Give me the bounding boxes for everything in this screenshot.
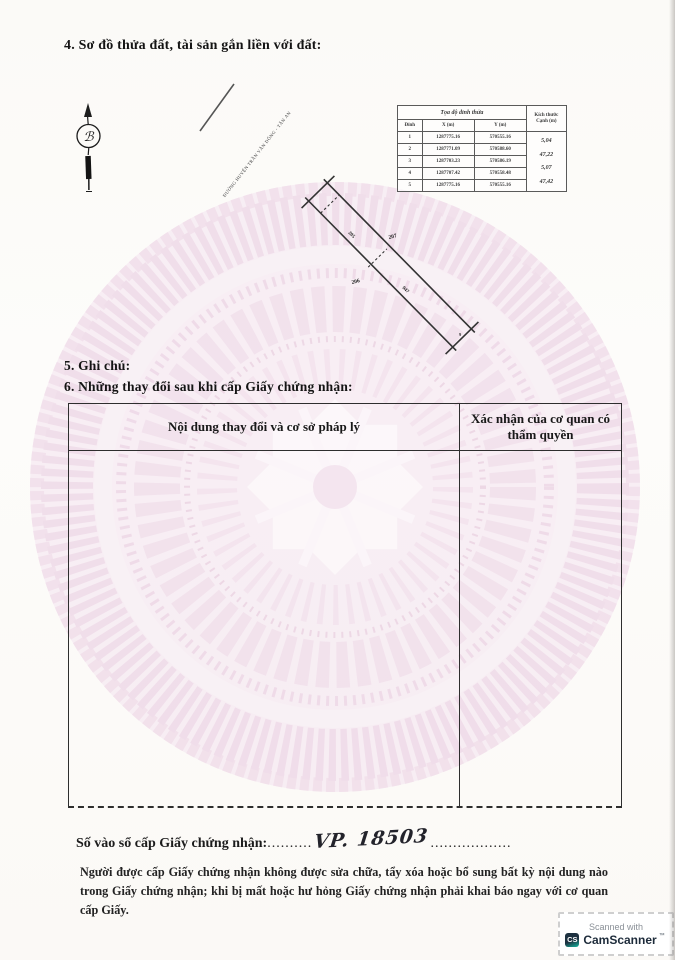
y-value: 570588.60 bbox=[474, 144, 526, 156]
x-value: 1287775.16 bbox=[422, 132, 474, 144]
edge-header-line2: Cạnh (m) bbox=[536, 119, 556, 124]
section6-title: 6. Những thay đổi sau khi cấp Giấy chứng… bbox=[64, 379, 353, 395]
camscanner-brand-row: CS CamScanner ™ bbox=[565, 933, 666, 947]
coord-edge-header: Kích thước Cạnh (m) bbox=[526, 106, 566, 132]
x-value: 1287771.09 bbox=[422, 144, 474, 156]
vertex-number: 3 bbox=[398, 156, 423, 168]
x-value: 1287775.16 bbox=[422, 180, 474, 192]
scanned-with-label: Scanned with bbox=[589, 922, 643, 932]
coord-x-header: X (m) bbox=[422, 120, 474, 132]
coord-y-header: Y (m) bbox=[474, 120, 526, 132]
scan-edge-shadow bbox=[669, 0, 675, 960]
changes-col1-header: Nội dung thay đổi và cơ sở pháp lý bbox=[69, 404, 459, 451]
changes-col1-body bbox=[69, 451, 459, 806]
dotted-leader: .................. bbox=[430, 836, 511, 851]
changes-table: Nội dung thay đổi và cơ sở pháp lý Xác n… bbox=[68, 403, 622, 808]
edge-length: 47,42 bbox=[527, 179, 566, 185]
changes-col2-header: Xác nhận của cơ quan có thẩm quyền bbox=[459, 404, 621, 451]
y-value: 570586.19 bbox=[474, 156, 526, 168]
changes-col2-body bbox=[459, 451, 621, 806]
section5-title: 5. Ghi chú: bbox=[64, 358, 130, 374]
trademark-symbol: ™ bbox=[659, 933, 665, 939]
coord-row: 1 1287775.16 570555.16 5,04 47,22 5,07 4… bbox=[398, 132, 567, 144]
y-value: 570555.16 bbox=[474, 132, 526, 144]
strip-label-upper: 205 bbox=[347, 231, 356, 240]
strip-label-lower: 947 bbox=[401, 286, 410, 295]
scanned-certificate-page: 4. Sơ đồ thửa đất, tài sản gắn liền với … bbox=[0, 0, 675, 960]
footer-warning-note: Người được cấp Giấy chứng nhận không đượ… bbox=[80, 863, 608, 920]
vertex-end-mark: 9 bbox=[459, 332, 462, 337]
edge-length: 5,07 bbox=[527, 165, 566, 171]
dotted-leader: .......... bbox=[267, 836, 312, 851]
edge-lengths-cell: 5,04 47,22 5,07 47,42 bbox=[526, 132, 566, 192]
coord-vertex-header: Đỉnh bbox=[398, 120, 423, 132]
camscanner-logo-icon: CS bbox=[565, 933, 579, 947]
adjacent-parcel-207: 207 bbox=[388, 233, 398, 241]
north-arrow-icon bbox=[77, 103, 100, 192]
x-value: 1287707.42 bbox=[422, 168, 474, 180]
camscanner-brand-name: CamScanner bbox=[583, 933, 656, 947]
edge-header-line1: Kích thước bbox=[534, 113, 558, 118]
x-value: 1287703.23 bbox=[422, 156, 474, 168]
coordinate-table: Tọa độ đỉnh thửa Kích thước Cạnh (m) Đỉn… bbox=[397, 105, 567, 192]
compass-north-letter: ℬ bbox=[83, 129, 94, 144]
coord-group-header: Tọa độ đỉnh thửa bbox=[398, 106, 527, 120]
road-name-label: ĐƯỜNG HUYỆN TRẦN VĂN DÕNG - TÂN AN bbox=[222, 110, 292, 198]
vertex-number: 4 bbox=[398, 168, 423, 180]
parcel-strip bbox=[302, 176, 479, 354]
edge-length: 5,04 bbox=[527, 138, 566, 144]
camscanner-badge: Scanned with CS CamScanner ™ bbox=[558, 912, 674, 956]
handwritten-registry-number: VP. 18503 bbox=[313, 825, 430, 853]
vertex-number: 1 bbox=[398, 132, 423, 144]
y-value: 570555.16 bbox=[474, 180, 526, 192]
road-boundary-line bbox=[200, 84, 234, 131]
registry-label: Số vào sổ cấp Giấy chứng nhận: bbox=[76, 836, 267, 851]
edge-length: 47,22 bbox=[527, 152, 566, 158]
vertex-number: 5 bbox=[398, 180, 423, 192]
registry-number-line: Số vào sổ cấp Giấy chứng nhận:..........… bbox=[76, 830, 511, 852]
y-value: 570558.48 bbox=[474, 168, 526, 180]
adjacent-parcel-206: 206 bbox=[351, 278, 361, 286]
vertex-number: 2 bbox=[398, 144, 423, 156]
